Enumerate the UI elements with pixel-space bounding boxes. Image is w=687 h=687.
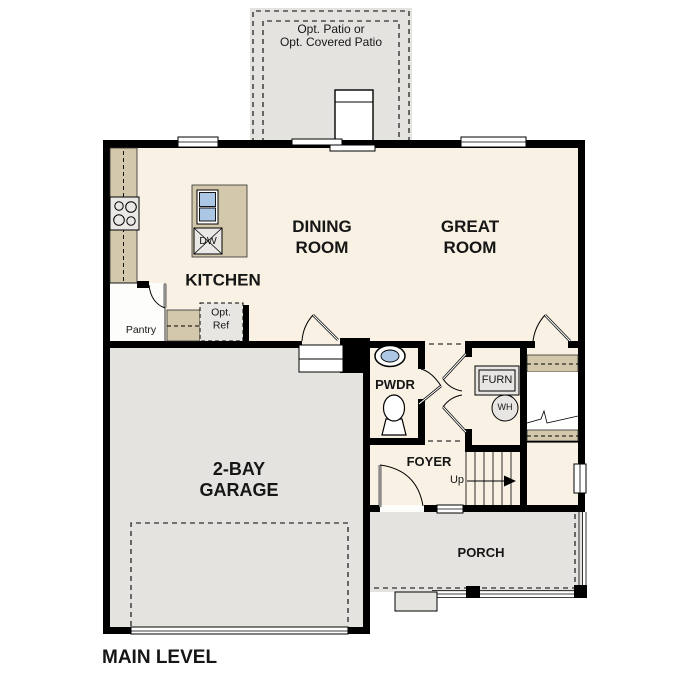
kitchen-label: KITCHEN [185, 270, 261, 291]
garage-entry-steps [299, 345, 343, 372]
front-door-threshold [380, 505, 424, 512]
water-heater-label: WH [498, 402, 513, 412]
porch-label: PORCH [458, 546, 505, 560]
kitchen-sink-icon [197, 190, 218, 224]
closet-shelf [527, 355, 578, 372]
floor-plan-drawing [0, 0, 687, 687]
garage-door-icon [131, 627, 348, 634]
window-icon [178, 137, 218, 147]
pantry-label: Pantry [126, 324, 156, 337]
opt-ref-label: Opt. Ref [211, 307, 231, 332]
great-room-label: GREAT ROOM [441, 216, 499, 258]
powder-room-label: PWDR [375, 378, 415, 392]
fireplace-icon [335, 90, 373, 143]
porch-step [395, 592, 437, 611]
patio-label-line2: Opt. Covered Patio [280, 36, 382, 49]
stove-icon [110, 197, 139, 230]
toilet-icon [382, 395, 406, 435]
dishwasher-label: DW [199, 235, 217, 248]
floor-plan: Opt. Patio or Opt. Covered Patio DINING … [0, 0, 687, 687]
garage-label: 2-BAY GARAGE [199, 459, 278, 501]
dining-room-label: DINING ROOM [292, 216, 352, 258]
sidelite-window-icon [437, 505, 463, 513]
plan-title: MAIN LEVEL [102, 648, 217, 668]
stairwell [527, 372, 578, 443]
furnace-label: FURN [482, 374, 513, 386]
window-icon [461, 137, 526, 147]
stairs-up-label: Up [450, 474, 464, 486]
patio-label: Opt. Patio or Opt. Covered Patio [280, 23, 382, 49]
foyer-label: FOYER [407, 455, 452, 469]
vanity-sink-icon [375, 346, 405, 367]
window-icon [574, 464, 586, 493]
